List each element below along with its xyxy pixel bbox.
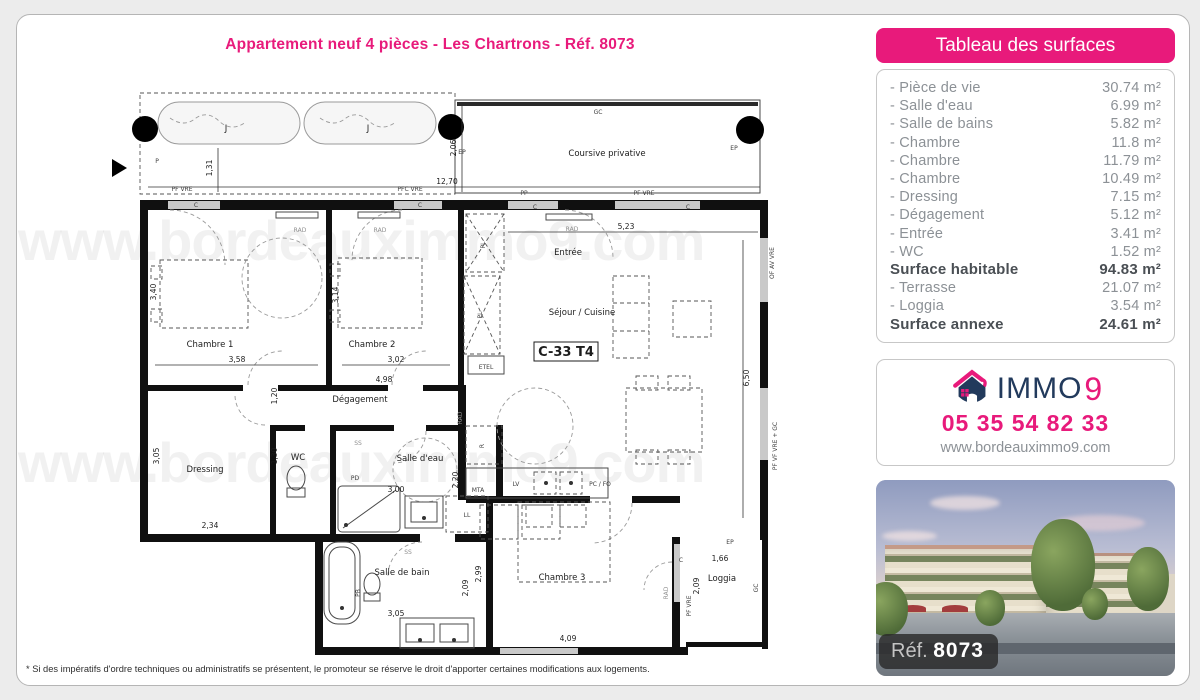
etel-label: ETEL [479, 364, 494, 371]
equipment-labels: RAD RAD RAD RAD RAD PL PL ETEL LV PC / F… [294, 226, 670, 599]
pf-vre-label: PF VRE [171, 186, 192, 193]
pcfo-label: PC / FO [589, 481, 611, 488]
lv-label: LV [513, 481, 521, 488]
surface-row: - Entrée3.41 m² [890, 225, 1161, 243]
dimensions: 12,70 2,06 1,31 5,23 3,40 3,58 3,14 3,02… [149, 139, 751, 643]
dim-ch2-height: 3,14 [331, 286, 340, 303]
ss-label: SS [404, 549, 412, 556]
dim-sdb-width: 3,05 [388, 609, 405, 618]
dim-ch3-height: 2,99 [474, 565, 483, 582]
room-wc: WC [291, 453, 305, 463]
pf-vre-label: PF VRE [633, 190, 654, 197]
photo-cloud [930, 496, 1000, 510]
room-salle-bain: Salle de bain [375, 568, 430, 578]
room-chambre3: Chambre 3 [539, 573, 586, 583]
rad-label: RAD [294, 227, 307, 234]
footnote: * Si des impératifs d'ordre techniques o… [26, 664, 846, 674]
dim-ch3-width: 4,09 [560, 634, 577, 643]
dim-sdb-height: 2,09 [461, 579, 470, 596]
dim-loggia-height: 2,09 [692, 577, 701, 594]
room-salle-eau: Salle d'eau [397, 454, 444, 464]
column [438, 114, 464, 140]
brand-name: IMMO [997, 372, 1083, 406]
surfaces-header: Tableau des surfaces [876, 28, 1175, 63]
room-chambre1: Chambre 1 [187, 340, 234, 350]
pp-label: PP [520, 190, 528, 197]
pl-label: PL [480, 241, 487, 249]
pfc-vre-label: PFC VRE [397, 186, 422, 193]
surface-row: - Salle d'eau6.99 m² [890, 97, 1161, 115]
column [736, 116, 764, 144]
dim-sejour-height: 6,50 [742, 369, 751, 386]
reference-badge: Réf. 8073 [879, 634, 998, 669]
column [132, 116, 158, 142]
mta-label: MTA [472, 487, 485, 494]
dim-ch2-width: 3,02 [388, 355, 405, 364]
terrace: J J [140, 93, 455, 194]
floor-plan: J J Coursive privative GC [110, 88, 800, 668]
ep-label: EP [730, 145, 738, 152]
dim-dressing-height: 3,05 [152, 447, 161, 464]
dim-ch1-height: 3,40 [149, 283, 158, 300]
rad-label: RAD [457, 411, 464, 424]
ep-label: EP [726, 539, 734, 546]
c-label: C [686, 204, 690, 211]
pf-vf-vre-gc-label: PF VF VRE + GC [772, 422, 779, 470]
surface-total-row: Surface annexe24.61 m² [890, 316, 1161, 334]
dim-salle-eau-width: 3,00 [388, 485, 405, 494]
agency-phone[interactable]: 05 35 54 82 33 [877, 410, 1174, 437]
ep-label: EP [458, 149, 466, 156]
ss-label: SS [354, 440, 362, 447]
agency-website-link[interactable]: www.bordeauximmo9.com [877, 440, 1174, 456]
c-label: C [679, 557, 683, 564]
pf-vre-label: PF VRE [686, 595, 693, 616]
ll-label: LL [464, 512, 471, 519]
c-label: C [194, 202, 198, 209]
dim-loggia-width: 1,66 [712, 554, 729, 563]
surface-row: - Dressing7.15 m² [890, 188, 1161, 206]
dim-ch1-width: 3,58 [229, 355, 246, 364]
surface-row: - Salle de bains5.82 m² [890, 115, 1161, 133]
c-label: C [533, 204, 537, 211]
room-dressing: Dressing [186, 465, 223, 475]
photo-parasol [942, 605, 968, 612]
p-label: P [155, 158, 159, 165]
unit-code: C-33 T4 [538, 345, 594, 360]
dim-salle-eau-height: 2,20 [451, 471, 460, 488]
page-title: Appartement neuf 4 pièces - Les Chartron… [30, 36, 830, 54]
dim-dressing-width: 2,34 [202, 521, 219, 530]
c-label: C [418, 202, 422, 209]
plan-direction-arrow-icon [112, 159, 127, 177]
dim-corridor-width: 4,98 [376, 375, 393, 384]
walls [140, 200, 768, 655]
photo-tree [1127, 547, 1169, 611]
room-degagement: Dégagement [332, 394, 388, 405]
coursive: Coursive privative GC [455, 100, 760, 193]
surface-row: - Loggia3.54 m² [890, 297, 1161, 315]
room-entree: Entrée [554, 247, 582, 258]
planter-label: J [224, 124, 228, 134]
dim-wc-width: 1,20 [270, 387, 279, 404]
surface-row: - Chambre10.49 m² [890, 170, 1161, 188]
ref-value: 8073 [933, 639, 984, 662]
house-icon [949, 368, 995, 410]
coursive-label: Coursive privative [568, 149, 645, 159]
surface-row: - WC1.52 m² [890, 243, 1161, 261]
wall-label-gc: GC [594, 109, 603, 116]
brand-digit: 9 [1084, 371, 1102, 408]
photo-cloud [882, 531, 937, 541]
building-photo: Réf. 8073 [876, 480, 1175, 676]
dim-total-width: 12,70 [436, 177, 458, 186]
room-loggia: Loggia [708, 574, 736, 584]
dim-wc-height: 1,30 [270, 447, 279, 464]
room-sejour: Séjour / Cuisine [549, 307, 615, 318]
photo-tree [975, 590, 1005, 626]
floor-plan-svg: J J Coursive privative GC [110, 88, 800, 668]
door-arcs [170, 210, 672, 590]
surface-row: - Chambre11.8 m² [890, 134, 1161, 152]
dim-sejour-width: 5,23 [618, 222, 635, 231]
pd-label: PD [351, 475, 360, 482]
of-av-vre-label: OF AV VRE [769, 247, 776, 279]
rad-label: RAD [566, 226, 579, 233]
surfaces-panel: - Pièce de vie30.74 m² - Salle d'eau6.99… [876, 69, 1175, 343]
agency-panel: IMMO9 05 35 54 82 33 www.bordeauximmo9.c… [876, 359, 1175, 466]
agency-logo: IMMO9 [877, 370, 1174, 408]
gc-label: GC [753, 584, 760, 593]
rad-label: RAD [663, 586, 670, 599]
surface-row: - Chambre11.79 m² [890, 152, 1161, 170]
pl-label: PL [477, 311, 484, 319]
dim-terrace-depth: 1,31 [205, 159, 214, 176]
dim-coursive-depth: 2,06 [449, 139, 458, 156]
unit-code-box: C-33 T4 [534, 342, 598, 361]
photo-tree [1082, 588, 1108, 620]
pb-label: PB [355, 589, 362, 597]
surface-row: - Dégagement5.12 m² [890, 206, 1161, 224]
surface-row: - Pièce de vie30.74 m² [890, 79, 1161, 97]
rad-label: RAD [374, 227, 387, 234]
ref-label: Réf. [891, 640, 928, 662]
surface-total-row: Surface habitable94.83 m² [890, 261, 1161, 279]
fridge-label: R [479, 444, 486, 448]
planter-label: J [366, 124, 370, 134]
surface-row: - Terrasse21.07 m² [890, 279, 1161, 297]
room-chambre2: Chambre 2 [349, 340, 396, 350]
